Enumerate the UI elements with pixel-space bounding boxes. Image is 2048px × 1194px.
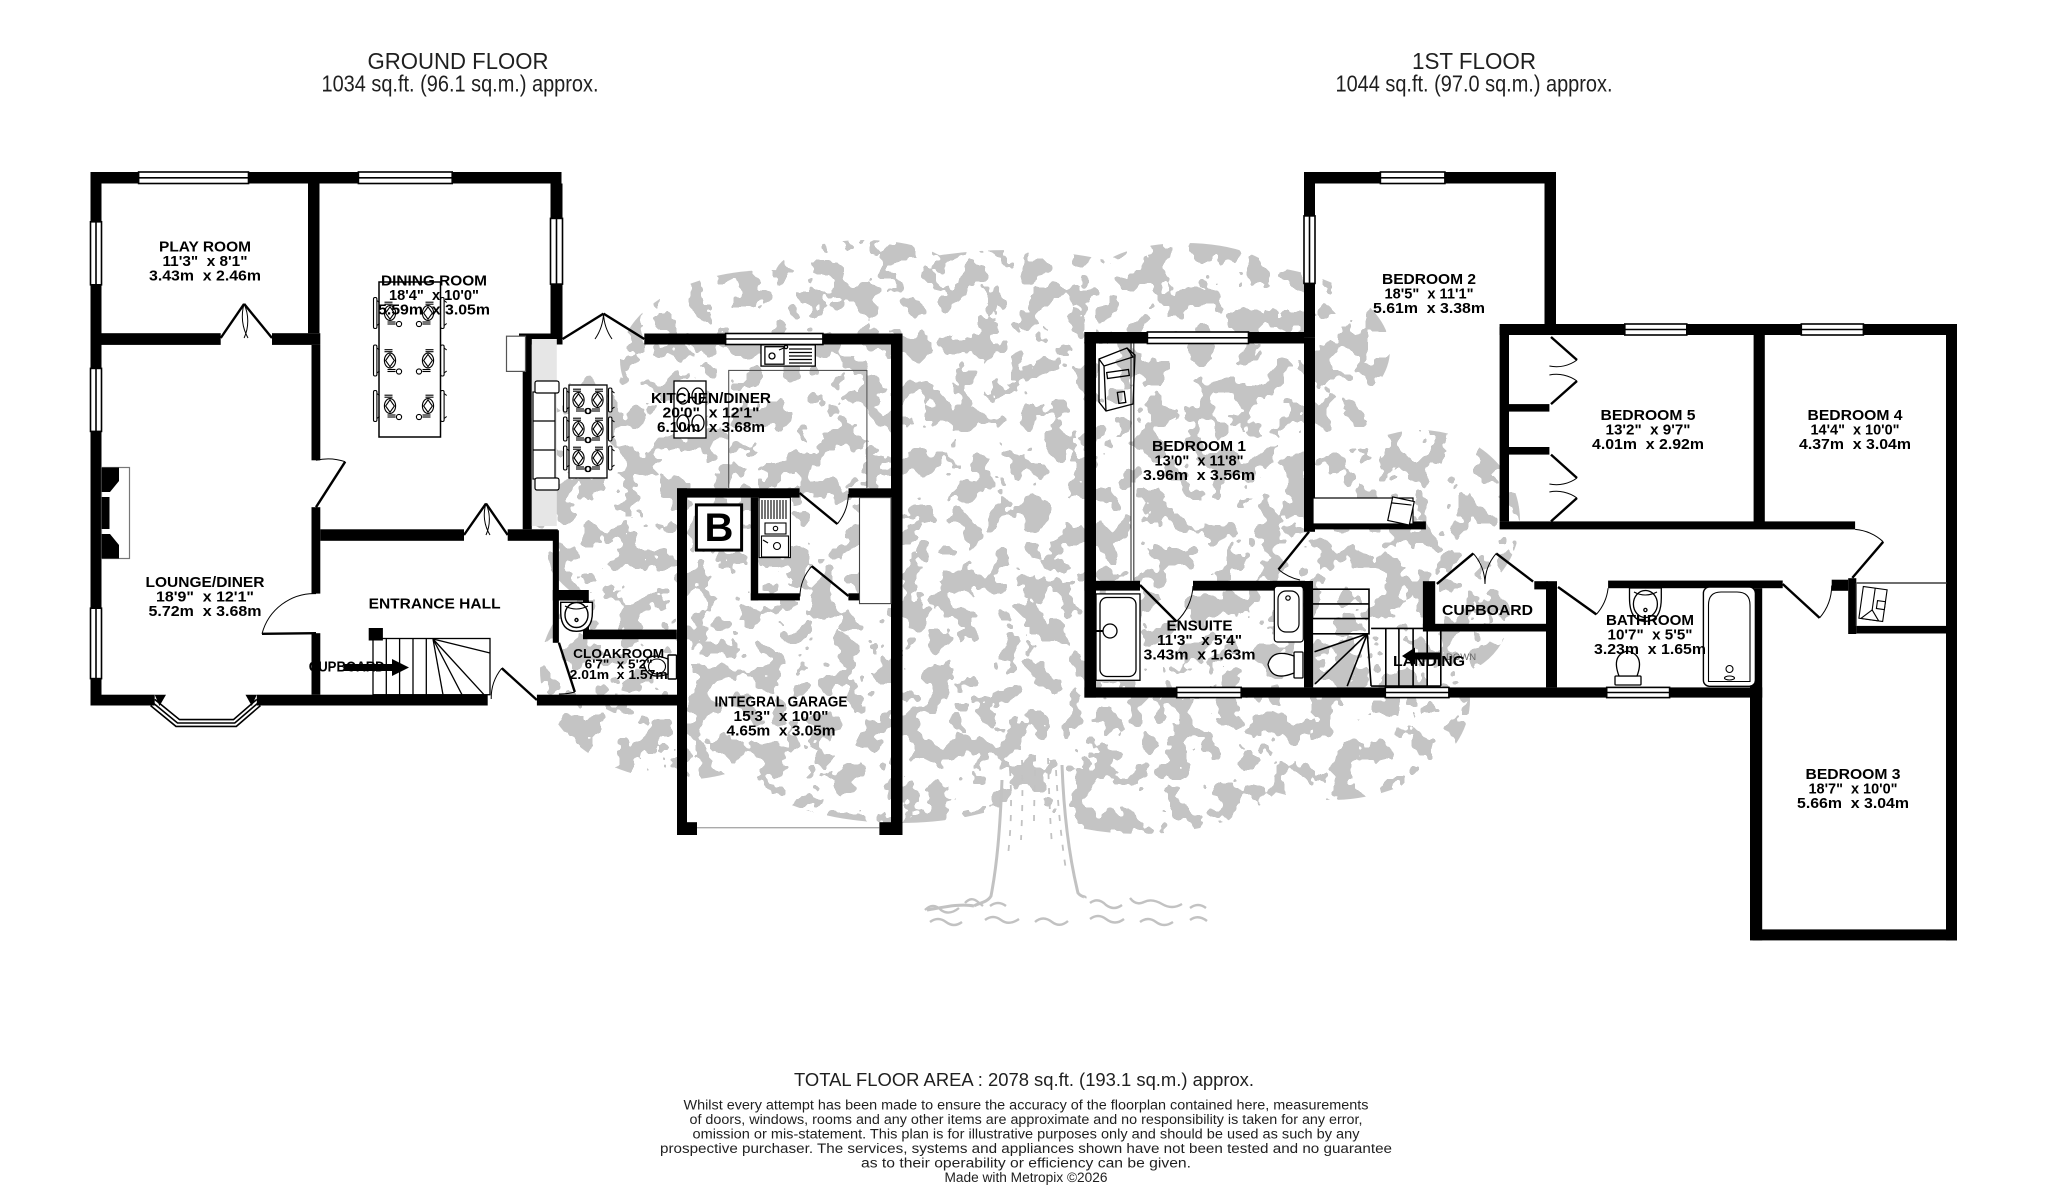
svg-text:6.10m x 3.68m: 6.10m x 3.68m bbox=[657, 419, 765, 436]
svg-text:LANDING: LANDING bbox=[1393, 653, 1465, 670]
svg-text:CUPBOARD: CUPBOARD bbox=[309, 659, 385, 676]
svg-text:3.23m x 1.65m: 3.23m x 1.65m bbox=[1594, 641, 1706, 658]
svg-text:4.65m x 3.05m: 4.65m x 3.05m bbox=[727, 723, 836, 740]
svg-text:TOTAL FLOOR AREA : 2078 sq.ft.: TOTAL FLOOR AREA : 2078 sq.ft. (193.1 sq… bbox=[794, 1069, 1254, 1090]
svg-text:CUPBOARD: CUPBOARD bbox=[1442, 602, 1533, 619]
svg-text:Whilst every attempt has been: Whilst every attempt has been made to en… bbox=[684, 1098, 1369, 1113]
svg-text:5.66m x 3.04m: 5.66m x 3.04m bbox=[1797, 795, 1909, 812]
svg-text:2.01m x 1.57m: 2.01m x 1.57m bbox=[570, 668, 668, 682]
svg-text:3.96m x 3.56m: 3.96m x 3.56m bbox=[1143, 467, 1255, 484]
svg-text:B: B bbox=[705, 506, 734, 550]
svg-text:prospective purchaser. The ser: prospective purchaser. The services, sys… bbox=[660, 1141, 1392, 1156]
svg-text:omission or mis-statement. Thi: omission or mis-statement. This plan is … bbox=[693, 1127, 1360, 1142]
svg-text:3.43m x 2.46m: 3.43m x 2.46m bbox=[149, 268, 261, 285]
svg-text:of doors, windows, rooms and a: of doors, windows, rooms and any other i… bbox=[690, 1112, 1363, 1127]
svg-text:as to their operability or eff: as to their operability or efficiency ca… bbox=[861, 1156, 1191, 1171]
svg-text:5.72m x 3.68m: 5.72m x 3.68m bbox=[149, 603, 262, 620]
svg-text:4.37m x 3.04m: 4.37m x 3.04m bbox=[1799, 436, 1911, 453]
svg-text:3.43m x 1.63m: 3.43m x 1.63m bbox=[1144, 647, 1256, 664]
svg-text:ENTRANCE HALL: ENTRANCE HALL bbox=[369, 596, 501, 613]
svg-text:1044 sq.ft. (97.0 sq.m.) appro: 1044 sq.ft. (97.0 sq.m.) approx. bbox=[1336, 71, 1613, 97]
svg-text:5.59m x 3.05m: 5.59m x 3.05m bbox=[378, 302, 490, 319]
svg-text:1034 sq.ft. (96.1 sq.m.) appro: 1034 sq.ft. (96.1 sq.m.) approx. bbox=[322, 71, 599, 97]
svg-text:5.61m x 3.38m: 5.61m x 3.38m bbox=[1373, 300, 1485, 317]
svg-text:4.01m x 2.92m: 4.01m x 2.92m bbox=[1592, 436, 1704, 453]
svg-text:Made with Metropix ©2026: Made with Metropix ©2026 bbox=[945, 1170, 1108, 1185]
